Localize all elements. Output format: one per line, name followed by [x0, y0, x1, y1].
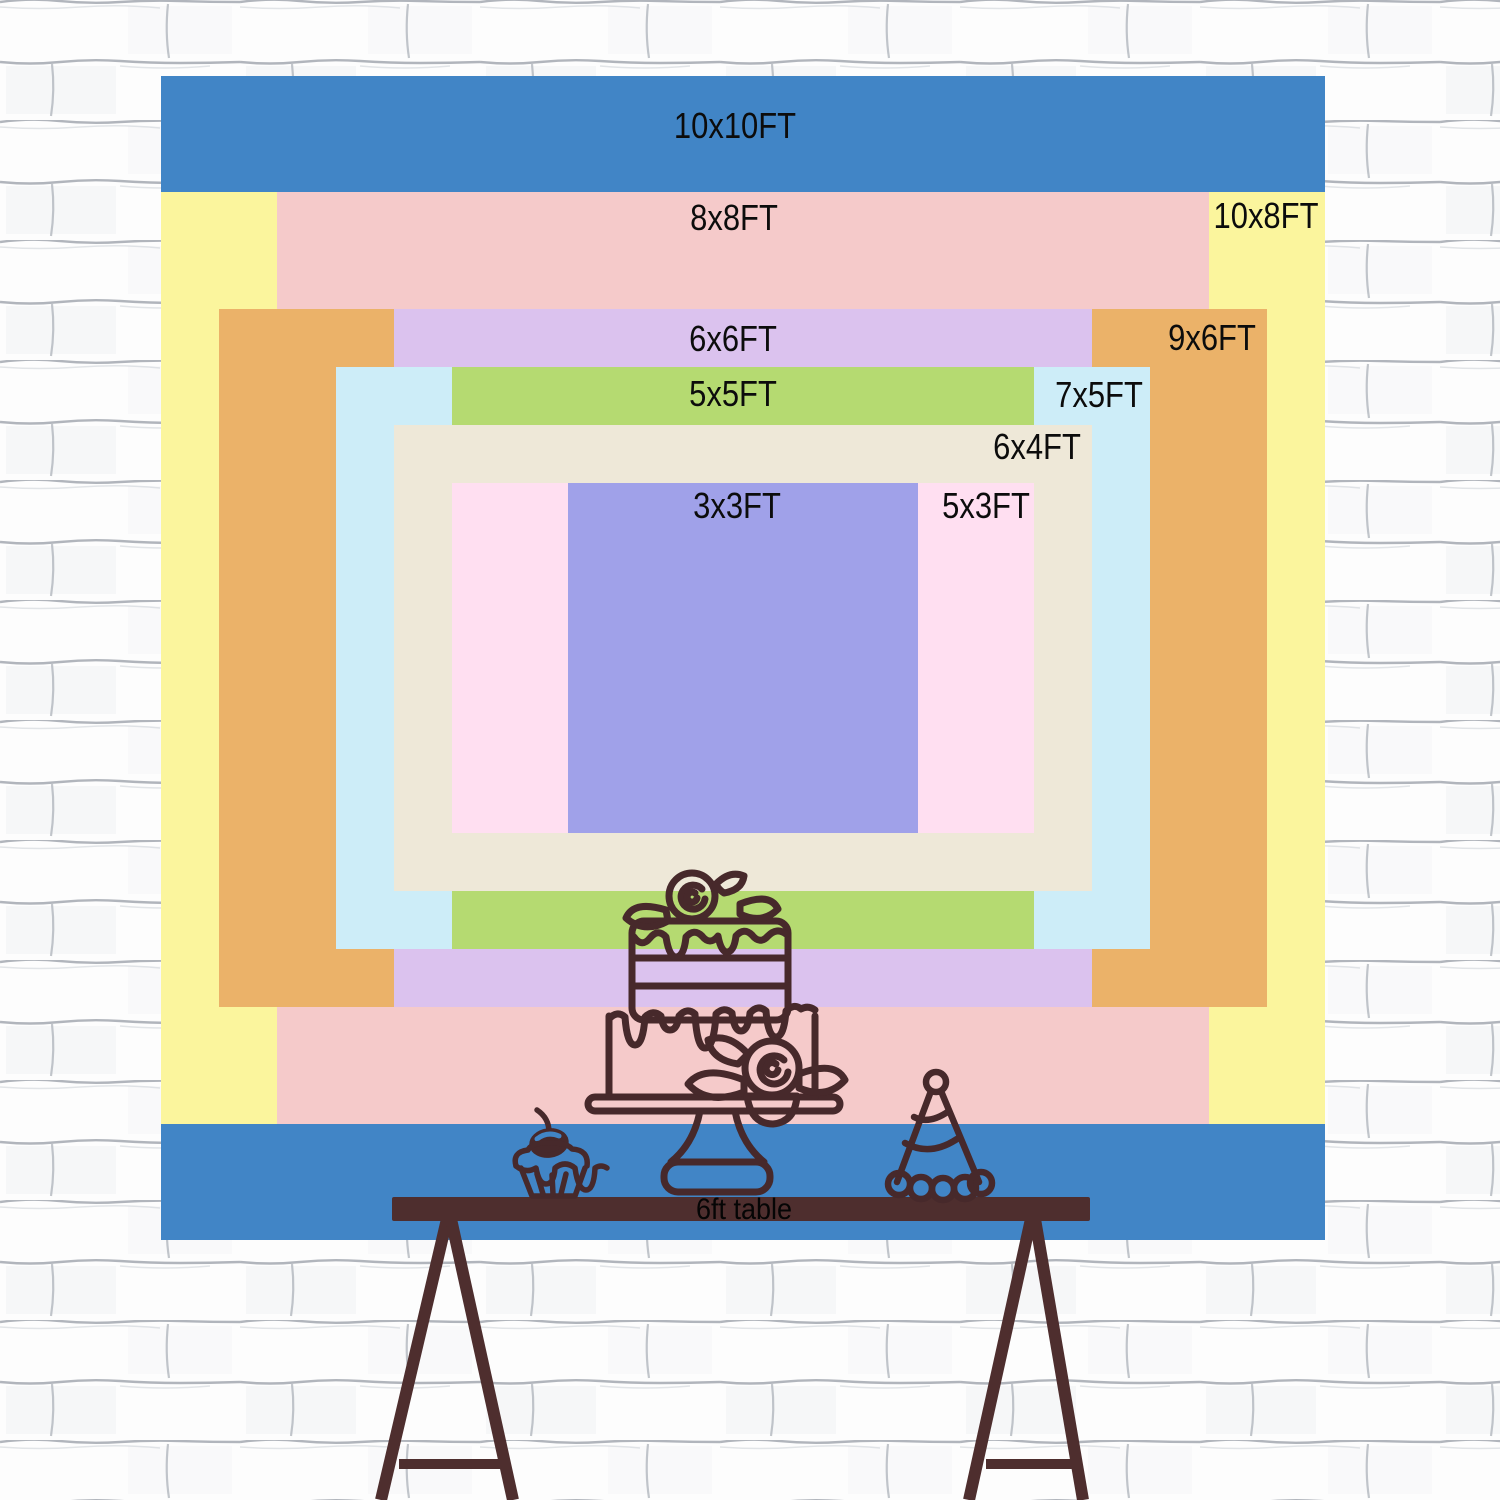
cupcake-icon: [515, 1110, 607, 1196]
cake-icon: [588, 873, 845, 1192]
table-illustration: [0, 0, 1500, 1500]
table: [381, 1197, 1090, 1500]
party-hat-icon: [888, 1072, 992, 1200]
table-size-label: 6ft table: [696, 1193, 792, 1227]
